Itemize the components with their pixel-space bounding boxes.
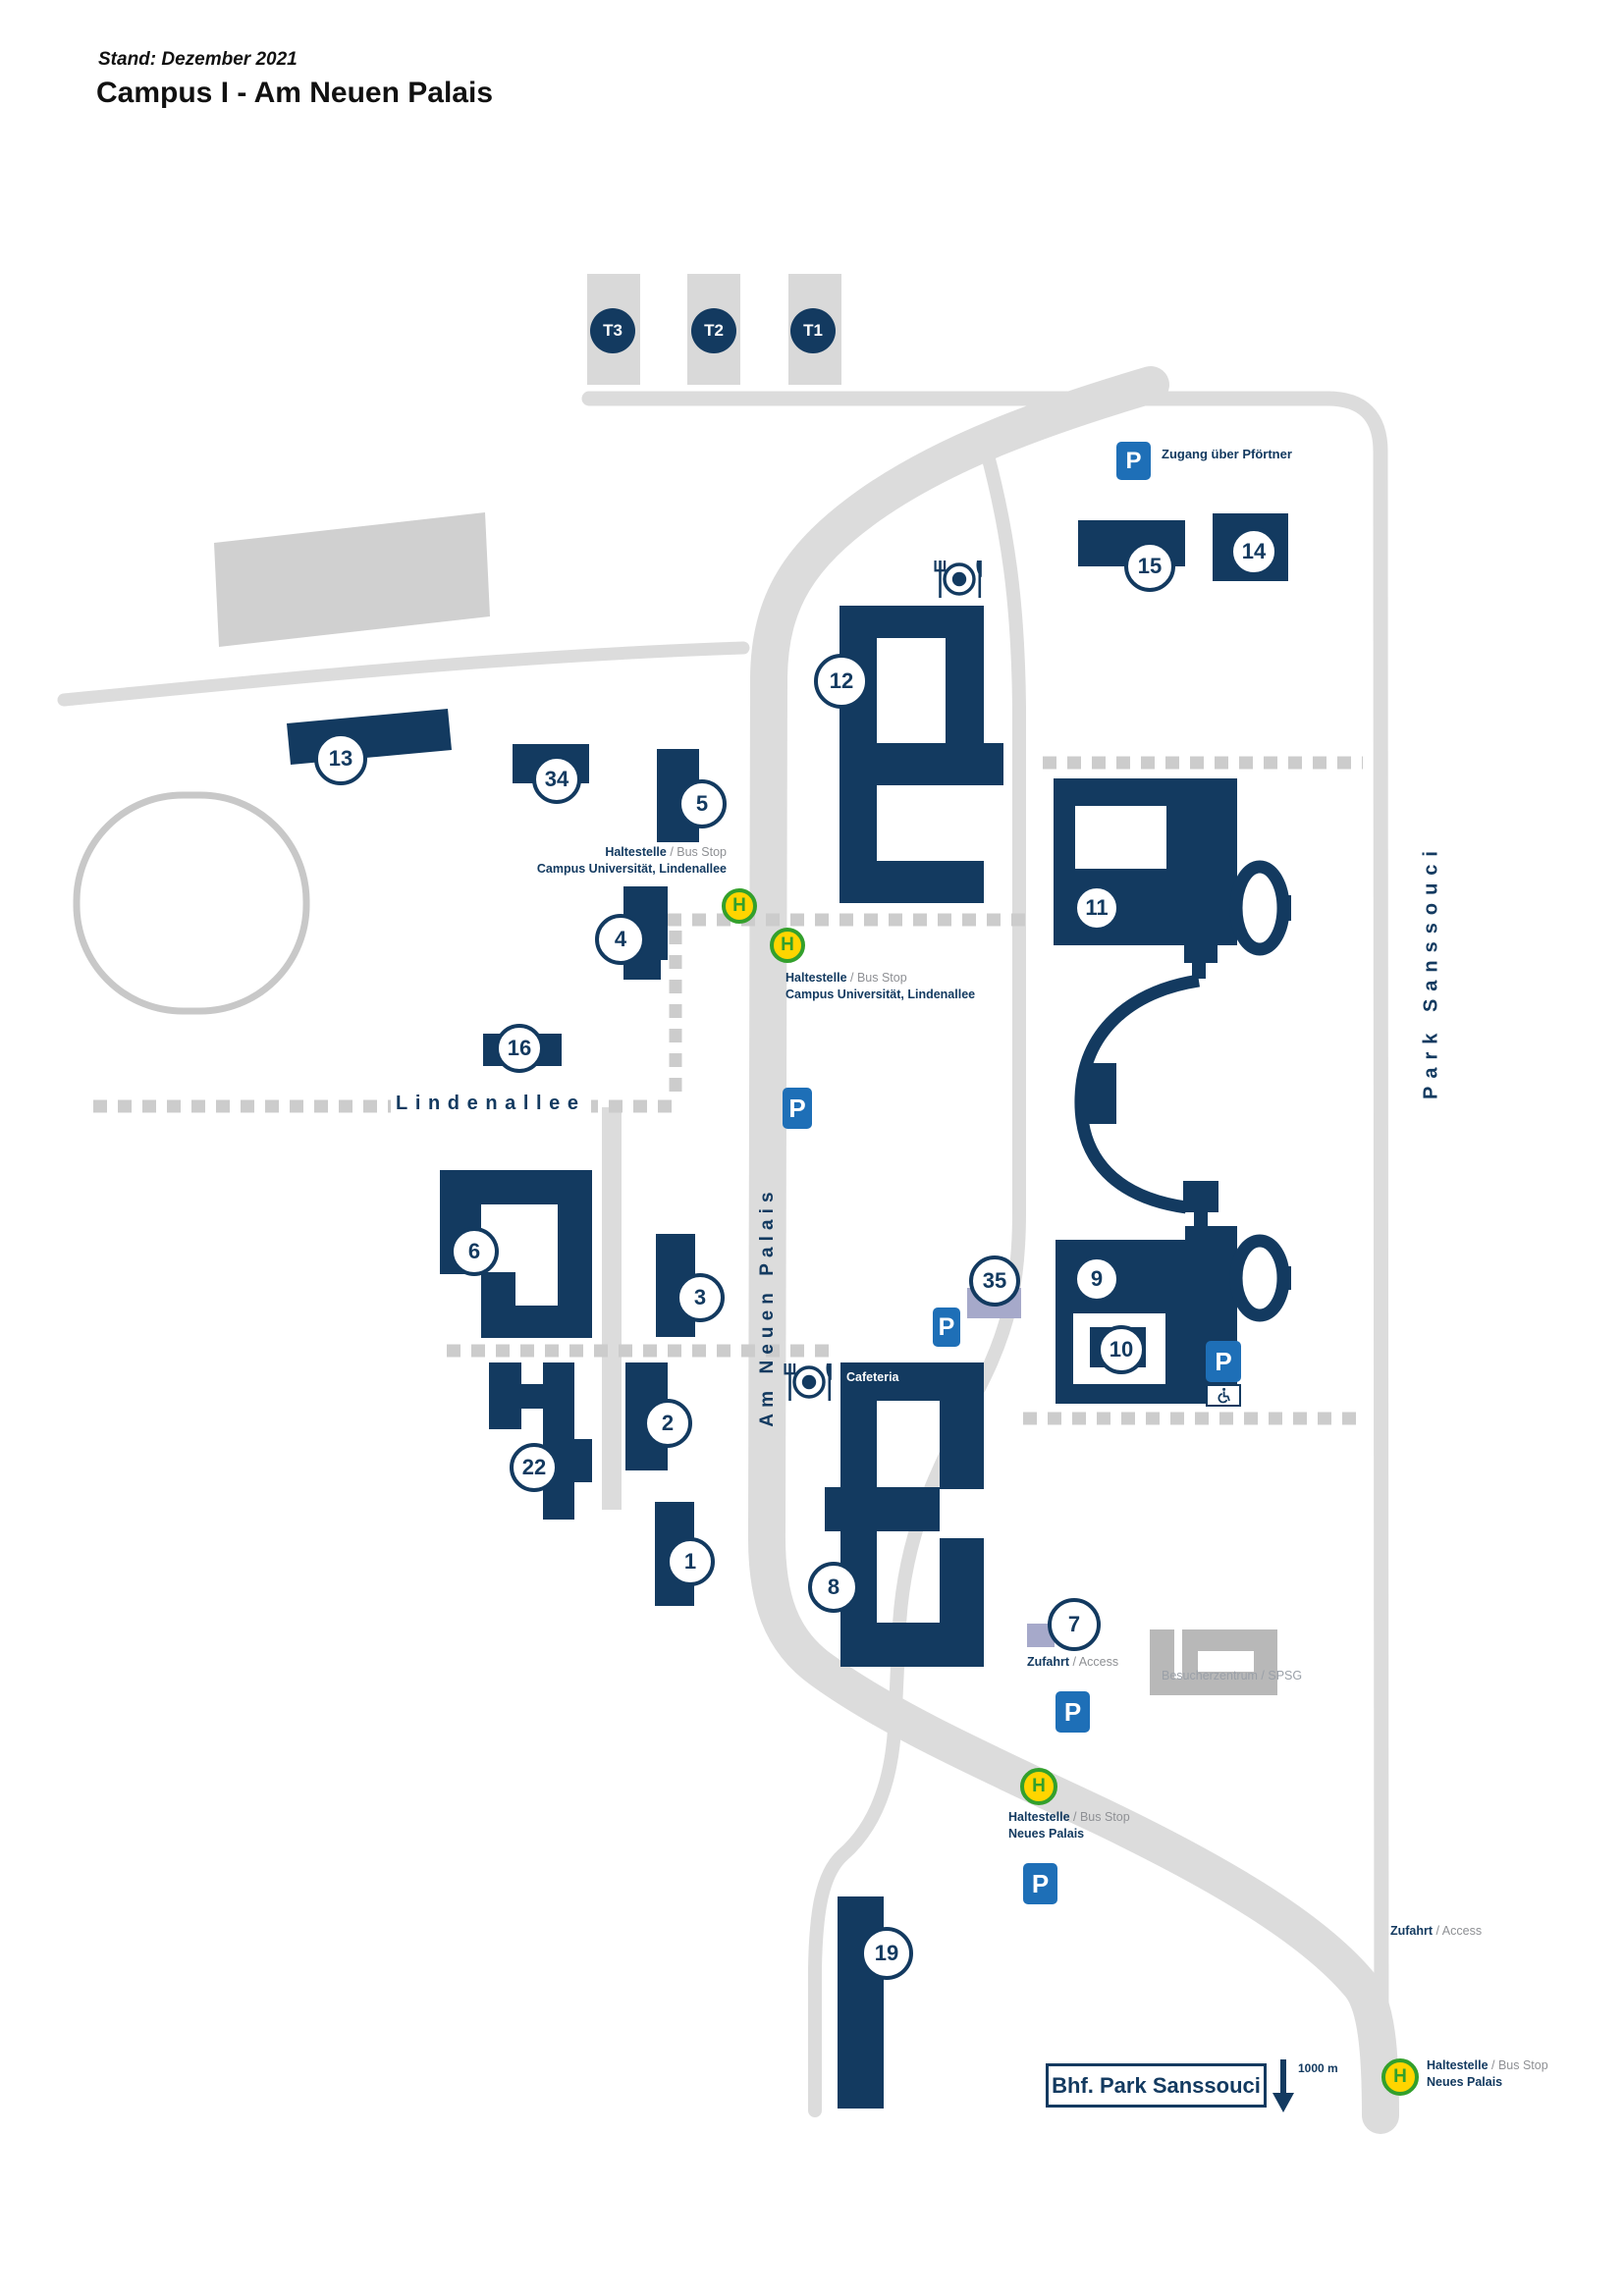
sports-field-outline [77, 795, 306, 1011]
building-marker-15: 15 [1124, 541, 1175, 592]
restaurant-icon [933, 560, 984, 599]
bus-stop-sign-neues-palais-north: H [1020, 1768, 1057, 1805]
bus-stop-sign-neues-palais-south: H [1381, 2058, 1419, 2096]
building-marker-1: 1 [666, 1537, 715, 1586]
building-marker-34: 34 [532, 755, 581, 804]
building-marker-6: 6 [450, 1227, 499, 1276]
besucherzentrum-building [1150, 1629, 1277, 1695]
building-marker-14: 14 [1229, 527, 1278, 576]
building-marker-3: 3 [676, 1273, 725, 1322]
parking-sign-3: P [933, 1308, 960, 1347]
page-title: Campus I - Am Neuen Palais [96, 77, 493, 110]
building-marker-4: 4 [595, 914, 646, 965]
building-marker-22: 22 [510, 1443, 559, 1492]
building-22-shape [489, 1362, 592, 1520]
building-marker-9: 9 [1073, 1255, 1120, 1303]
building-marker-8: 8 [808, 1562, 859, 1613]
restaurant-icon-1 [933, 560, 984, 599]
building-marker-7: 7 [1048, 1598, 1101, 1651]
bus-stop-sign-campus-universitaet-lindenallee-west: H [722, 888, 757, 924]
street-label-am-neuen-palais: Am Neuen Palais [757, 1159, 779, 1454]
bus-stop-label-neues-palais-north: Haltestelle / Bus StopNeues Palais [1008, 1809, 1130, 1842]
station-sign-bhf-park-sanssouci: Bhf. Park Sanssouci [1046, 2063, 1267, 2108]
cafeteria-label: Cafeteria [846, 1370, 899, 1384]
street-label-park-sanssouci: Park Sanssouci [1421, 825, 1443, 1119]
street-label-lindenallee: Lindenallee [391, 1093, 591, 1115]
parking-sign-6: P [1023, 1863, 1057, 1904]
tram-stop-t1: T1 [790, 308, 836, 353]
parking-sign-1: P [1116, 442, 1151, 480]
building-marker-13: 13 [314, 732, 367, 785]
building-marker-35: 35 [969, 1255, 1020, 1307]
building-marker-19: 19 [860, 1927, 913, 1980]
bus-stop-label-campus-universitaet-lindenallee-west: Haltestelle / Bus StopCampus Universität… [537, 844, 727, 877]
station-distance-label: 1000 m [1298, 2061, 1338, 2075]
building-marker-10: 10 [1097, 1325, 1146, 1374]
building-marker-11: 11 [1073, 884, 1120, 932]
building-marker-2: 2 [643, 1399, 692, 1448]
bus-stop-label-campus-universitaet-lindenallee-east: Haltestelle / Bus StopCampus Universität… [785, 970, 975, 1002]
building-12-shape [839, 606, 1003, 903]
parking-sign-2: P [783, 1088, 812, 1129]
parking-sign-accessible: P [1206, 1341, 1241, 1382]
tram-stop-t3: T3 [590, 308, 635, 353]
building-marker-5: 5 [677, 779, 727, 828]
building-marker-16: 16 [495, 1024, 544, 1073]
gatekeeper-access-label: Zugang über Pförtner [1162, 447, 1292, 461]
map-date-stamp: Stand: Dezember 2021 [98, 49, 298, 71]
colonnade [1081, 981, 1237, 1240]
university-buildings [287, 513, 1291, 2109]
building-11-shape [1054, 778, 1291, 979]
restaurant-icon [783, 1362, 834, 1402]
access-label-2: Zufahrt / Access [1390, 1924, 1482, 1938]
tram-stop-t2: T2 [691, 308, 736, 353]
building-marker-12: 12 [814, 654, 869, 709]
building-13-shape [287, 709, 452, 765]
non-university-building [214, 512, 490, 647]
accessible-parking-icon [1206, 1384, 1241, 1407]
parking-sign-5: P [1056, 1691, 1090, 1733]
station-direction-arrow [1272, 2059, 1294, 2112]
bus-stop-label-neues-palais-south: Haltestelle / Bus StopNeues Palais [1427, 2057, 1548, 2090]
access-label-1: Zufahrt / Access [1027, 1655, 1118, 1669]
campus-map-page: Stand: Dezember 2021 Campus I - Am Neuen… [0, 0, 1624, 2296]
restaurant-icon-2 [783, 1362, 834, 1402]
bus-stop-sign-campus-universitaet-lindenallee-east: H [770, 928, 805, 963]
besucherzentrum-label: Besucherzentrum / SPSG [1162, 1669, 1302, 1682]
road-west-diagonal [64, 648, 743, 700]
